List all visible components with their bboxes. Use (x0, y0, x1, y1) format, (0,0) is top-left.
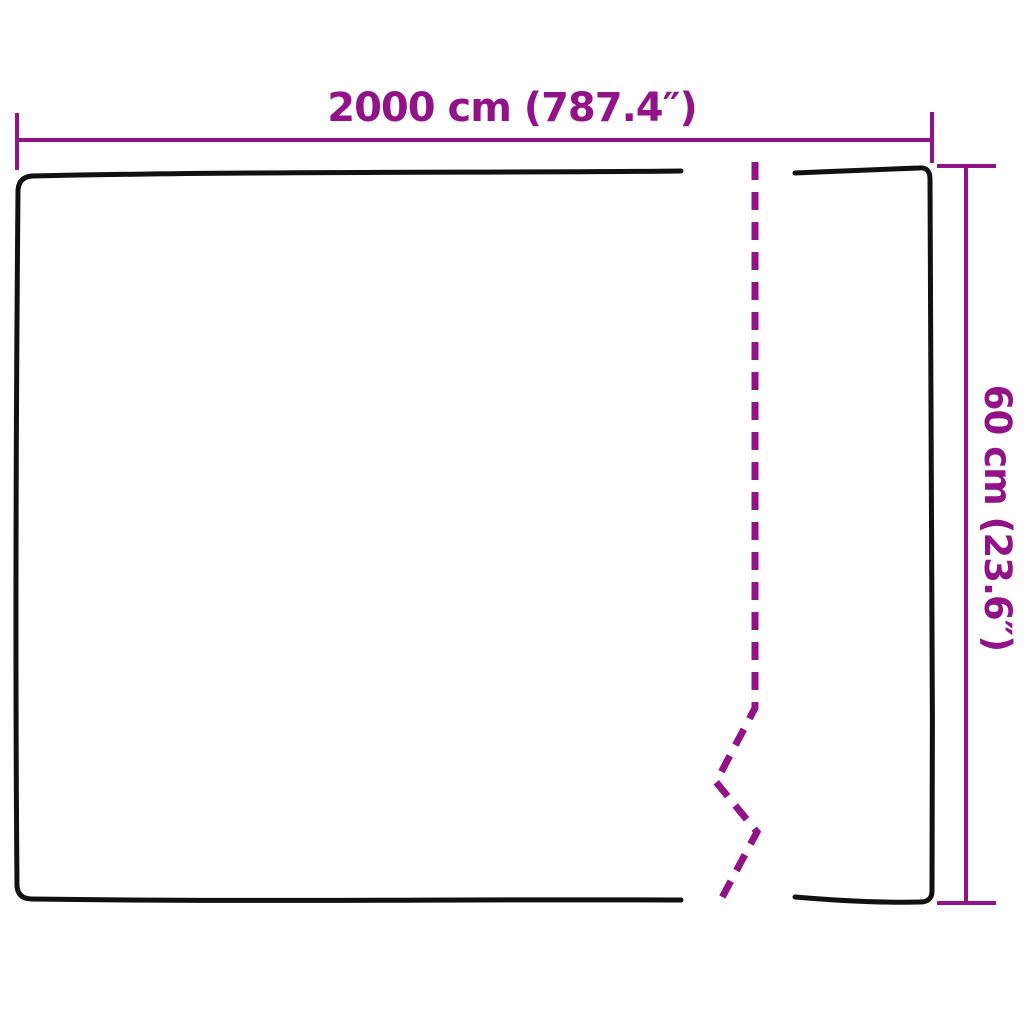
product-dimension-diagram: 2000 cm (787.4″) 60 cm (23.6″) (0, 0, 1024, 1024)
panel-outline-right (795, 168, 932, 902)
height-dimension-label: 60 cm (23.6″) (977, 385, 1017, 651)
diagram-canvas (0, 0, 1024, 1024)
panel-outline-left (16, 171, 681, 900)
length-break-dashed-line (716, 162, 757, 907)
width-dimension-label: 2000 cm (787.4″) (0, 86, 1024, 130)
